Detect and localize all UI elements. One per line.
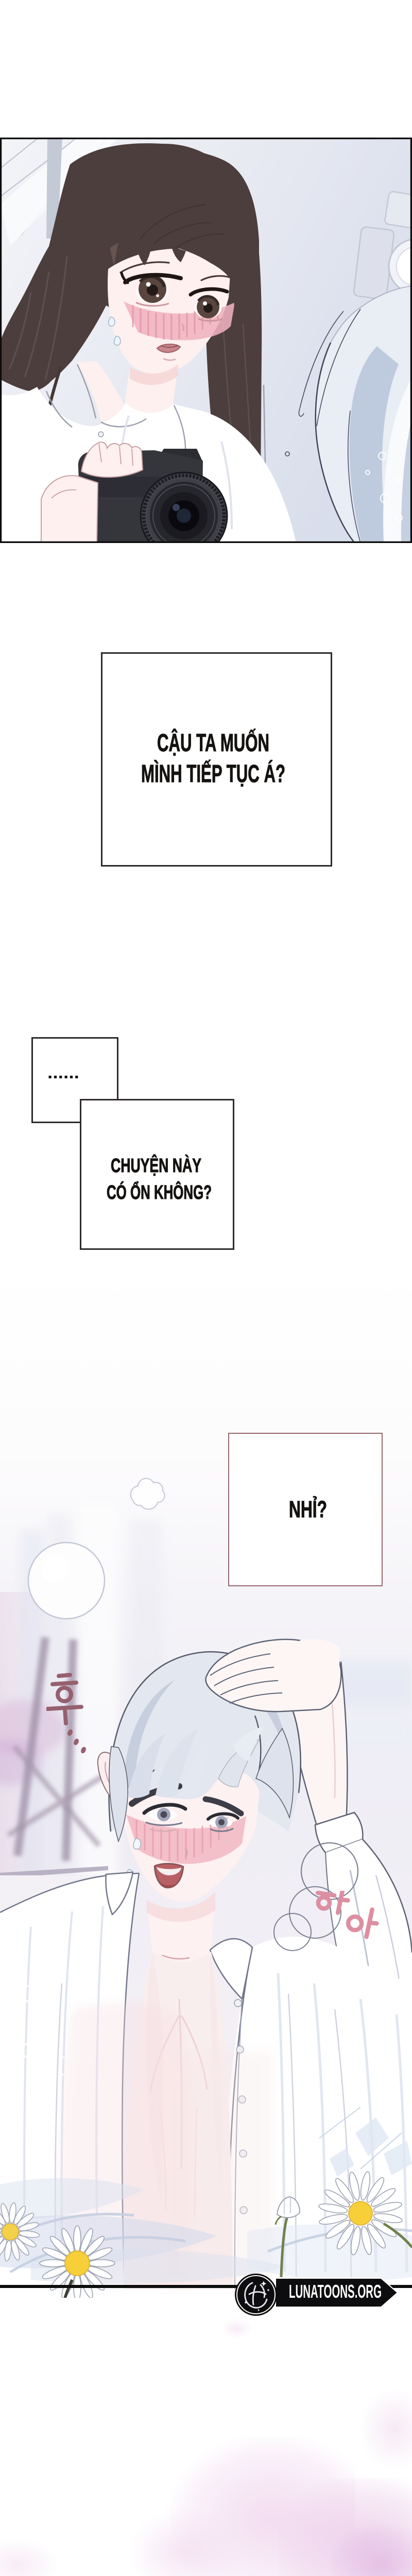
svg-text:CẬU TA MUỐN: CẬU TA MUỐN — [157, 728, 269, 757]
svg-text:CHUYỆN NÀY: CHUYỆN NÀY — [111, 1154, 201, 1177]
svg-text:CÓ ỔN KHÔNG?: CÓ ỔN KHÔNG? — [107, 1180, 212, 1204]
svg-text:MÌNH TIẾP TỤC Á?: MÌNH TIẾP TỤC Á? — [141, 760, 285, 788]
svg-text:......: ...... — [47, 1063, 79, 1082]
svg-text:LUNATOONS.ORG: LUNATOONS.ORG — [289, 2281, 382, 2302]
svg-text:NHỈ?: NHỈ? — [289, 1496, 327, 1522]
